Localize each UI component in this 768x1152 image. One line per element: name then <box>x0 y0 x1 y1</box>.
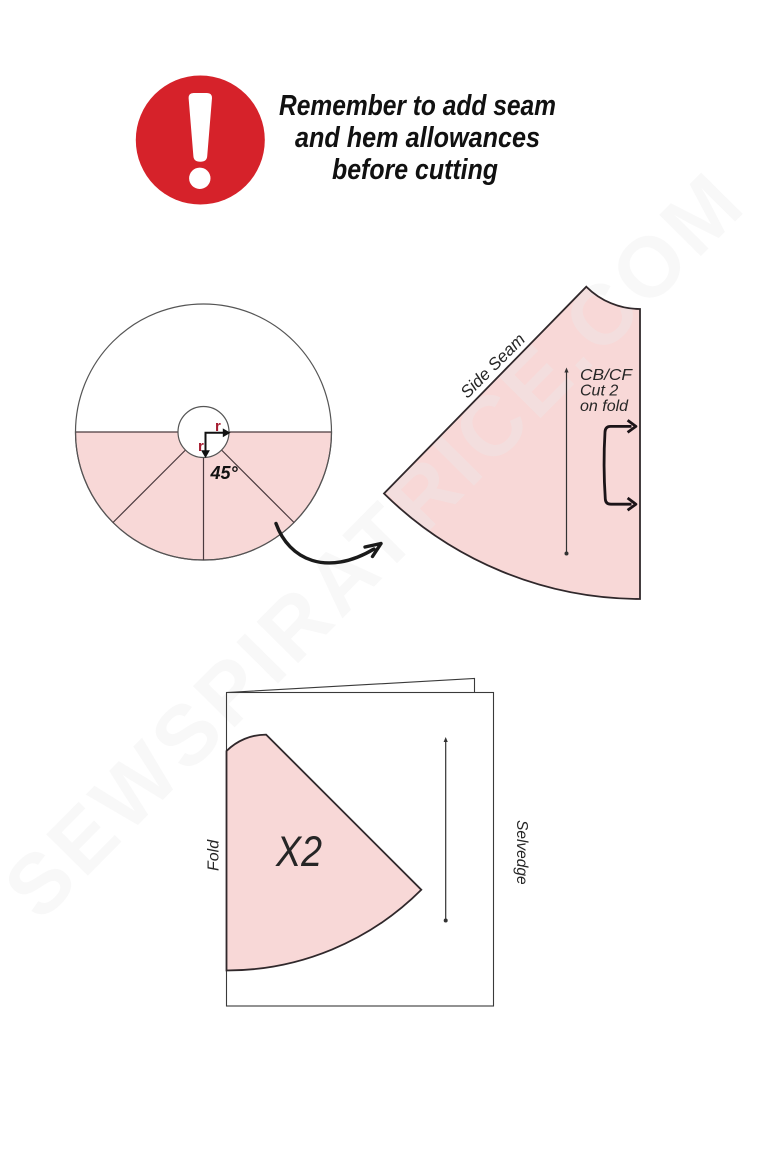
svg-text:and hem allowances: and hem allowances <box>295 122 540 154</box>
svg-text:Cut 2: Cut 2 <box>580 383 618 400</box>
svg-text:on fold: on fold <box>580 398 629 415</box>
svg-text:Fold: Fold <box>206 839 223 871</box>
svg-text:CB/CF: CB/CF <box>580 367 633 384</box>
svg-text:r: r <box>198 438 204 455</box>
svg-text:r: r <box>215 418 221 435</box>
svg-text:Remember to add seam: Remember to add seam <box>279 90 556 122</box>
svg-text:X2: X2 <box>275 828 322 876</box>
svg-text:Selvedge: Selvedge <box>513 820 530 885</box>
svg-text:45°: 45° <box>210 463 239 483</box>
svg-text:before cutting: before cutting <box>332 154 498 186</box>
